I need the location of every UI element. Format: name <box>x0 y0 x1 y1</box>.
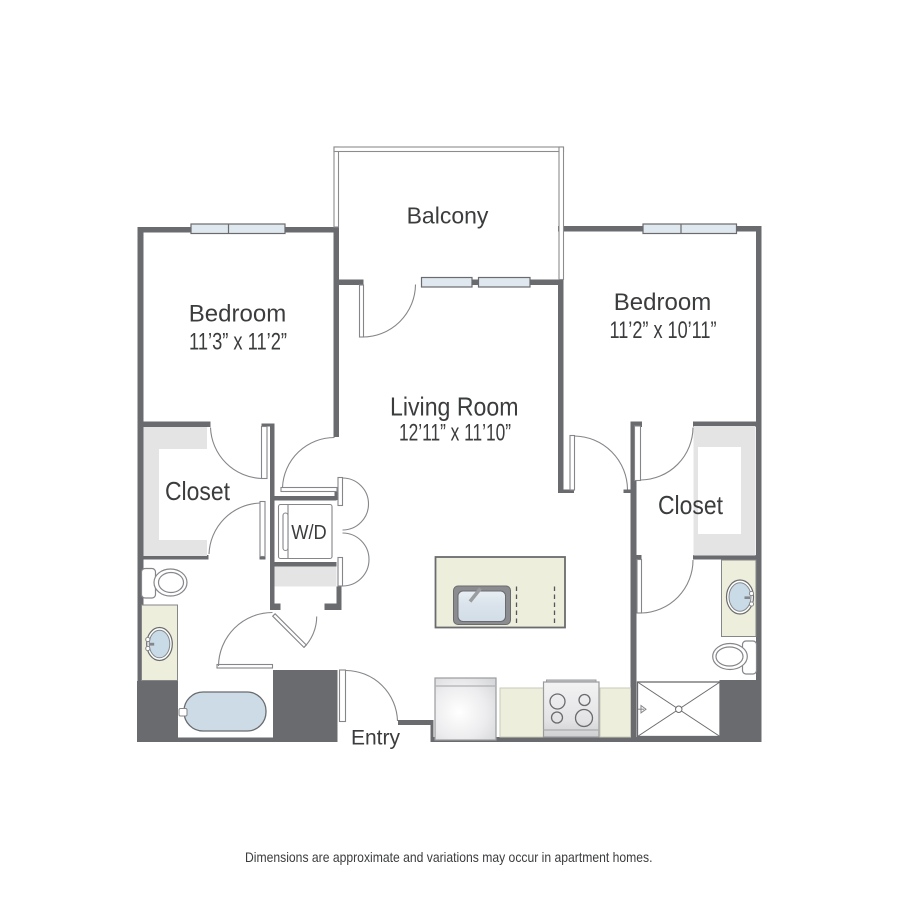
svg-text:Dimensions are approximate and: Dimensions are approximate and variation… <box>245 849 653 865</box>
svg-text:Bedroom: Bedroom <box>189 301 286 328</box>
svg-text:11’3” x 11’2”: 11’3” x 11’2” <box>189 329 287 356</box>
svg-text:Entry: Entry <box>351 727 401 750</box>
svg-text:Closet: Closet <box>165 476 231 506</box>
svg-text:Living Room: Living Room <box>390 392 519 422</box>
svg-text:11’2” x 10’11”: 11’2” x 10’11” <box>610 317 717 344</box>
svg-text:Balcony: Balcony <box>407 203 489 229</box>
svg-text:Bedroom: Bedroom <box>614 289 711 316</box>
svg-text:Closet: Closet <box>658 490 724 520</box>
svg-text:12’11” x 11’10”: 12’11” x 11’10” <box>399 420 511 447</box>
svg-text:W/D: W/D <box>291 522 327 544</box>
